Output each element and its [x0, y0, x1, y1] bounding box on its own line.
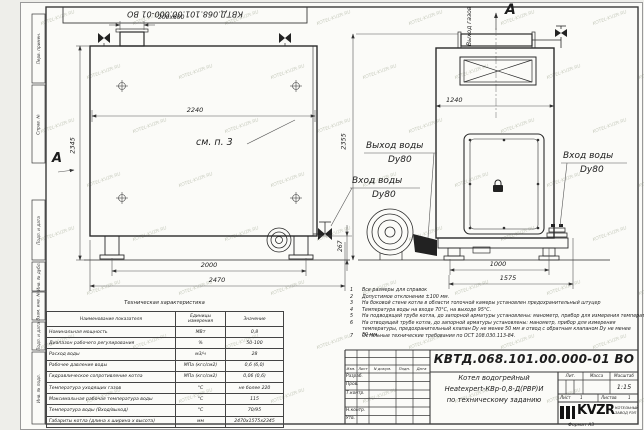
param-name: Диапазон рабочего регулирования: [47, 338, 176, 349]
param-unit: МПа (кгс/см2): [176, 360, 226, 371]
note-number: 3: [350, 301, 353, 306]
dim-2470: 2470: [197, 277, 237, 284]
param-value: 0,6 (6,0): [226, 360, 284, 371]
logo-caption-line2: ЗАВОД РЭП: [615, 412, 636, 416]
product-title-line3: по техническому заданию: [430, 397, 558, 404]
param-unit: МВт: [176, 327, 226, 338]
note-text: Температура воды на входе 70°С, на выход…: [362, 308, 634, 314]
drain-valve-icon: [313, 222, 332, 240]
table-row: Гидравлическое сопротивление котлаМПа (к…: [47, 371, 284, 382]
water-inlet-right-dn: Dy80: [580, 166, 604, 175]
param-unit: мм: [176, 416, 226, 427]
flange-icon: [267, 228, 291, 252]
lit-label: Лит.: [558, 374, 583, 378]
note-number: 7: [350, 334, 353, 339]
frame-strip-vzam-inv: Взам. инв. №: [32, 292, 45, 320]
param-value: 115: [226, 394, 284, 405]
sign-row-utv: Утв.: [346, 417, 355, 422]
top-stamp-doc-number: КВТД.068.101.00.000-01 ВО: [63, 9, 307, 17]
product-title-line1: Котел водогрейный: [430, 375, 558, 382]
dim-2345: 2345: [70, 130, 77, 160]
note-text: На подводящей трубе котла, до запорной а…: [362, 314, 634, 320]
param-unit: м3/ч: [176, 349, 226, 360]
param-name: Гидравлическое сопротивление котла: [47, 371, 176, 382]
sheets-value: 1: [628, 396, 631, 400]
frame-strip-podp-data2: Подп. и дата: [32, 322, 45, 350]
kvzr-logo-icon: [560, 406, 575, 419]
dim-267: 267: [338, 231, 344, 261]
param-name: Температура воды (Вход/выход): [47, 405, 176, 416]
param-value: 28: [226, 349, 284, 360]
param-value: 50-100: [226, 338, 284, 349]
valve-icon: [98, 33, 291, 43]
doc-number: КВТД.068.101.00.000-01 ВО: [432, 353, 636, 366]
param-name: Габариты котла (длина х ширина х высота): [47, 416, 176, 427]
flange-icon: [547, 224, 567, 237]
col-header: Значение: [226, 312, 284, 327]
sheets-label: Листов: [601, 396, 617, 400]
note-text: Допустимое отклонение ±100 мм.: [362, 295, 634, 301]
sheet-value: 1: [580, 396, 583, 400]
dim-2240: 2240: [175, 107, 215, 114]
param-unit: °С: [176, 394, 226, 405]
frame-strip-label: Подп. и дата: [36, 216, 41, 245]
param-value: 70/95: [226, 405, 284, 416]
frame-strip-inv-dubl: Инв. № дубл.: [32, 262, 45, 291]
note-text: Остальные технические требования по ОСТ …: [362, 334, 634, 340]
note-number: 6: [350, 321, 353, 326]
param-value: 0,06 (0,6): [226, 371, 284, 382]
frame-strip-perv-primen: Перв. примен.: [32, 14, 45, 83]
table-row: Номинальная мощностьМВт0,8: [47, 327, 284, 338]
door-handle-icon: [493, 180, 503, 192]
mass-label: Масса: [583, 374, 610, 378]
kvzr-logo-text: KVZR: [577, 404, 615, 418]
sign-row-tkontr: Т.контр.: [346, 392, 365, 397]
param-unit: МПа (кгс/см2): [176, 371, 226, 382]
col-podp: Подп.: [396, 367, 413, 371]
param-name: Расход воды: [47, 349, 176, 360]
dim-2000: 2000: [189, 262, 229, 269]
scale-value: 1:15: [610, 384, 638, 391]
water-inlet-dn: Dy80: [372, 191, 396, 200]
param-unit: %: [176, 338, 226, 349]
param-name: Максимальная рабочая температура воды: [47, 394, 176, 405]
frame-strip-label: Справ. №: [36, 114, 41, 134]
note-number: 5: [350, 314, 353, 319]
dim-1000: 1000: [478, 261, 518, 268]
water-inlet-label: Вход воды: [352, 177, 402, 186]
scale-label: Масштаб: [610, 374, 638, 378]
frame-strip-label: Подп. и дата: [36, 322, 41, 351]
table-row: Диапазон рабочего регулирования%50-100: [47, 338, 284, 349]
dim-chimney: 200x600: [158, 15, 184, 21]
frame-strip-label: Взам. инв. №: [36, 292, 41, 320]
sign-row-razrab: Разраб.: [346, 375, 363, 380]
col-header: Наименование показателя: [47, 312, 176, 327]
water-outlet-label: Выход воды: [366, 142, 423, 151]
spec-table-grid: Наименование показателя Единицы измерени…: [46, 311, 284, 428]
water-inlet-right-label: Вход воды: [563, 152, 613, 161]
frame-strip-sprav: Справ. №: [32, 85, 45, 163]
door-bolt-icon: [469, 139, 540, 230]
valve-icon: [555, 29, 567, 37]
front-view: [358, 13, 610, 260]
format-note: Формат А3: [568, 424, 594, 429]
front-view-dimensions: [353, 34, 573, 289]
spec-table-title: Техническая характеристика: [46, 300, 283, 311]
dim-2355: 2355: [341, 126, 348, 156]
note-number: 2: [350, 295, 353, 300]
param-name: Номинальная мощность: [47, 327, 176, 338]
boiler-door: [464, 134, 544, 234]
note-number: 1: [350, 288, 353, 293]
sign-row-nkontr: Н.контр.: [346, 409, 365, 414]
view-a-label: А: [505, 3, 516, 18]
frame-strip-label: Перв. примен.: [36, 33, 41, 64]
param-name: Рабочее давление воды: [47, 360, 176, 371]
table-row: Габариты котла (длина х ширина х высота)…: [47, 416, 284, 427]
table-row: Расход водым3/ч28: [47, 349, 284, 360]
col-dokum: N докум.: [369, 367, 396, 371]
note-text: Все размеры для справок: [362, 288, 634, 294]
table-header-row: Наименование показателя Единицы измерени…: [47, 312, 284, 327]
note-number: 4: [350, 308, 353, 313]
col-data: Дата: [413, 367, 430, 371]
frame-strip-inv-podl: Инв. № подл.: [32, 352, 45, 424]
blower-fan-icon: [367, 209, 437, 260]
table-row: Температура уходящих газов°Сне более 220: [47, 382, 284, 393]
param-unit: °С: [176, 405, 226, 416]
sheet-label: Лист: [560, 396, 571, 400]
spec-table: Техническая характеристика Наименование …: [46, 300, 283, 428]
param-value: 0,8: [226, 327, 284, 338]
table-row: Температура воды (Вход/выход)°С70/95: [47, 405, 284, 416]
param-unit: °С: [176, 382, 226, 393]
frame-strip-label: Инв. № подл.: [36, 374, 41, 403]
frame-strip-podp-data: Подп. и дата: [32, 200, 45, 260]
sign-row-prov: Пров.: [346, 383, 359, 388]
col-izm: Изм.: [345, 367, 357, 371]
dim-1240: 1240: [446, 97, 463, 104]
product-title-line2: Heatexpert-КВр-0,8-Д(РВР)И: [430, 386, 558, 393]
view-a-arrow-label: А: [52, 152, 62, 166]
col-list: Лист: [357, 367, 369, 371]
col-header: Единицы измерения: [176, 312, 226, 327]
note-text: На боковой стене котла в области топочно…: [362, 301, 634, 307]
drawing-sheet: KOTEL-KVZR.RUKOTEL-KVZR.RUKOTEL-KVZR.RUK…: [0, 0, 644, 430]
param-name: Температура уходящих газов: [47, 382, 176, 393]
table-row: Рабочее давление водыМПа (кгс/см2)0,6 (6…: [47, 360, 284, 371]
param-value: 2470х1575х2345: [226, 416, 284, 427]
param-value: не более 220: [226, 382, 284, 393]
see-note-ref: см. п. 3: [196, 138, 233, 148]
frame-strip-label: Инв. № дубл.: [36, 262, 41, 291]
gas-outlet-label: Выход газов: [467, 7, 473, 46]
dim-1575: 1575: [488, 275, 528, 282]
table-row: Максимальная рабочая температура воды°С1…: [47, 394, 284, 405]
water-outlet-dn: Dy80: [388, 156, 412, 165]
